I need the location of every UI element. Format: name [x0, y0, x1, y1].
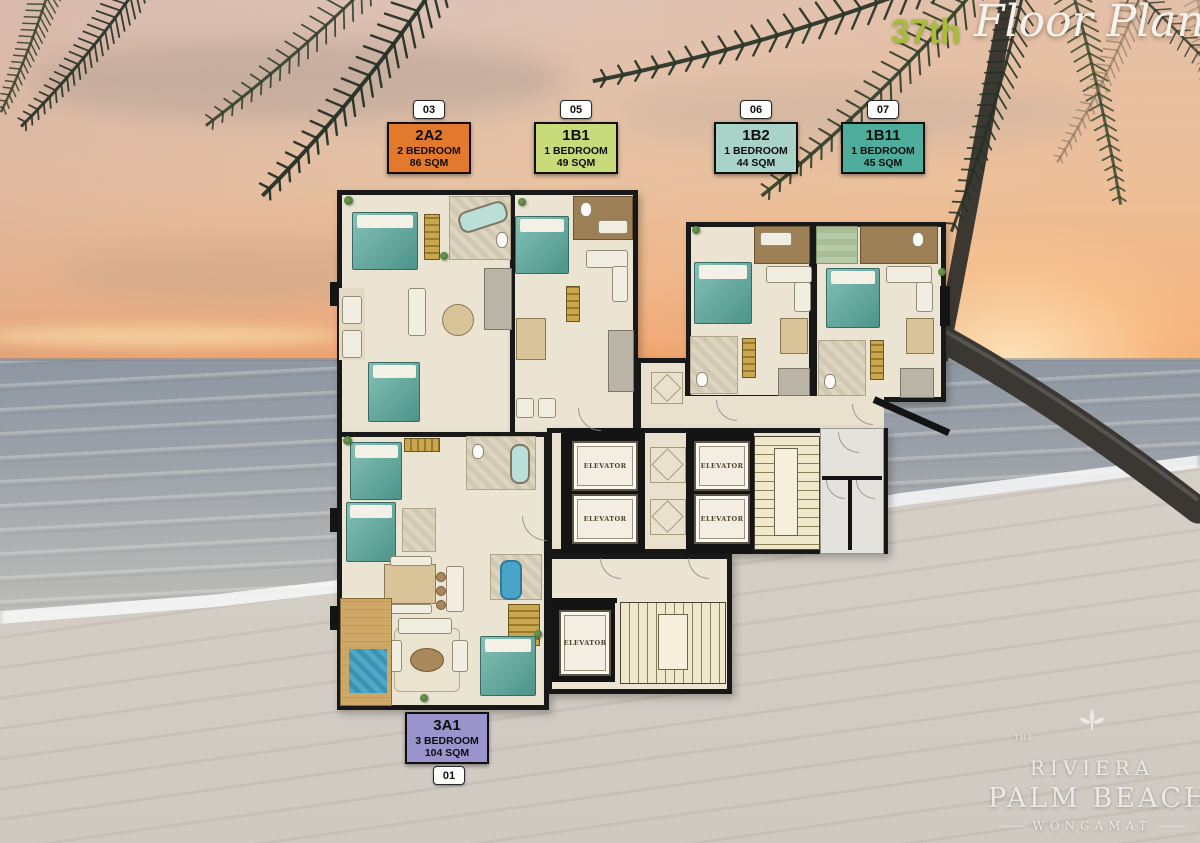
elevator-label: ELEVATOR — [584, 515, 627, 523]
logo-palm-beach: PALM BEACH — [988, 783, 1196, 814]
service-wall — [848, 478, 852, 550]
floor-medallion — [650, 447, 686, 483]
plant — [692, 226, 700, 234]
logo-wongamat-text: WONGAMAT — [1032, 819, 1151, 833]
toilet — [824, 374, 836, 389]
kitchen-counter — [900, 368, 934, 398]
lounge-chair — [342, 330, 362, 358]
plant — [534, 630, 542, 638]
dining-table — [906, 318, 934, 354]
dining-table — [442, 304, 474, 336]
bathtub-blue — [500, 560, 522, 600]
dining-table — [516, 318, 546, 360]
unit-badge-03: 03 — [413, 100, 445, 119]
lounge-chair — [342, 296, 362, 324]
bed — [515, 216, 569, 274]
unit-badge-01: 01 — [433, 766, 465, 785]
wall-column — [330, 508, 338, 532]
stool — [436, 586, 446, 596]
unit-code: 2A2 — [391, 127, 467, 145]
sofa — [886, 266, 932, 283]
bed — [350, 442, 402, 500]
chaise — [760, 232, 792, 246]
bed — [346, 502, 396, 562]
unit-code: 3A1 — [409, 717, 485, 735]
unit-label-1B11: 1B11 1 BEDROOM 45 SQM — [841, 122, 925, 174]
bathroom-wood — [860, 226, 938, 264]
dining-chairs — [390, 604, 432, 614]
bed — [694, 262, 752, 324]
ottoman — [410, 648, 444, 672]
unit-bedrooms: 2 BEDROOM — [391, 145, 467, 157]
unit-code: 1B11 — [845, 127, 921, 145]
wardrobe — [870, 340, 884, 380]
sofa — [612, 266, 628, 302]
unit-label-1B1: 1B1 1 BEDROOM 49 SQM — [534, 122, 618, 174]
palmette-icon — [1077, 708, 1107, 732]
bed — [352, 212, 418, 270]
sofa — [916, 282, 933, 312]
floor-number: 37th — [891, 13, 961, 52]
unit-bedrooms: 1 BEDROOM — [538, 145, 614, 157]
chair — [538, 398, 556, 418]
wall-column — [330, 282, 338, 306]
unit-bedrooms: 1 BEDROOM — [718, 145, 794, 157]
page-title: Floor Plan — [974, 0, 1200, 47]
plant — [420, 694, 428, 702]
bed — [480, 636, 536, 696]
plant — [343, 436, 352, 445]
unit-area: 49 SQM — [538, 157, 614, 169]
unit-label-2A2: 2A2 2 BEDROOM 86 SQM — [387, 122, 471, 174]
wardrobe — [404, 438, 440, 452]
logo-riviera: RIVIERA — [988, 756, 1196, 780]
unit-area: 86 SQM — [391, 157, 467, 169]
kitchen-counter — [778, 368, 810, 396]
floor-medallion — [651, 372, 683, 404]
kitchen-island — [446, 566, 464, 612]
stool — [436, 600, 446, 610]
bed — [826, 268, 880, 328]
unit-bedrooms: 3 BEDROOM — [409, 735, 485, 747]
sofa — [766, 266, 812, 283]
wardrobe — [566, 286, 580, 322]
toilet — [696, 372, 708, 387]
unit-badge-05: 05 — [560, 100, 592, 119]
unit-badge-06: 06 — [740, 100, 772, 119]
chair — [516, 398, 534, 418]
plant — [440, 252, 448, 260]
rule-line — [999, 826, 1025, 827]
unit-code: 1B1 — [538, 127, 614, 145]
rule-line — [1159, 826, 1185, 827]
dining-chairs — [390, 556, 432, 566]
green-terrace — [816, 226, 858, 264]
plant — [518, 198, 526, 206]
unit-label-1B2: 1B2 1 BEDROOM 44 SQM — [714, 122, 798, 174]
kitchen-counter — [608, 330, 634, 392]
wardrobe — [742, 338, 756, 378]
stool — [436, 572, 446, 582]
unit-area: 45 SQM — [845, 157, 921, 169]
unit-badge-07: 07 — [867, 100, 899, 119]
plant — [938, 268, 946, 276]
bathroom-tile — [402, 508, 436, 552]
elevator-label: ELEVATOR — [564, 639, 607, 647]
brand-logo: THE RIVIERA PALM BEACH WONGAMAT — [988, 708, 1196, 833]
unit-bedrooms: 1 BEDROOM — [845, 145, 921, 157]
unit-area: 104 SQM — [409, 747, 485, 759]
elevator-label: ELEVATOR — [701, 462, 744, 470]
floor-medallion — [650, 499, 686, 535]
elevator-label: ELEVATOR — [701, 515, 744, 523]
floor-plan-page: 37th Floor Plan ELEVATOR ELEVATOR ELEVAT… — [0, 0, 1200, 843]
kitchen-counter — [484, 268, 512, 330]
dining-table — [780, 318, 808, 354]
toilet — [472, 444, 484, 459]
logo-the: THE — [1014, 734, 1034, 742]
sofa — [794, 282, 811, 312]
toilet — [496, 232, 508, 248]
bathtub — [510, 444, 530, 484]
wall-column — [330, 606, 338, 630]
elevator-label: ELEVATOR — [584, 462, 627, 470]
stair-rail — [774, 448, 798, 536]
stair-rail — [658, 614, 688, 670]
plant — [344, 196, 353, 205]
unit-label-3A1: 3A1 3 BEDROOM 104 SQM — [405, 712, 489, 764]
logo-wongamat: WONGAMAT — [988, 819, 1196, 833]
toilet — [912, 232, 924, 247]
sofa — [408, 288, 426, 336]
unit-area: 44 SQM — [718, 157, 794, 169]
unit-code: 1B2 — [718, 127, 794, 145]
palm-trunk-upper — [940, 0, 1012, 360]
armchair — [452, 640, 468, 672]
toilet — [580, 202, 592, 217]
jacuzzi — [346, 646, 390, 696]
wardrobe — [424, 214, 440, 260]
sofa — [398, 618, 452, 634]
wall-column — [940, 286, 950, 326]
bath-bench — [598, 220, 628, 234]
bed — [368, 362, 420, 422]
